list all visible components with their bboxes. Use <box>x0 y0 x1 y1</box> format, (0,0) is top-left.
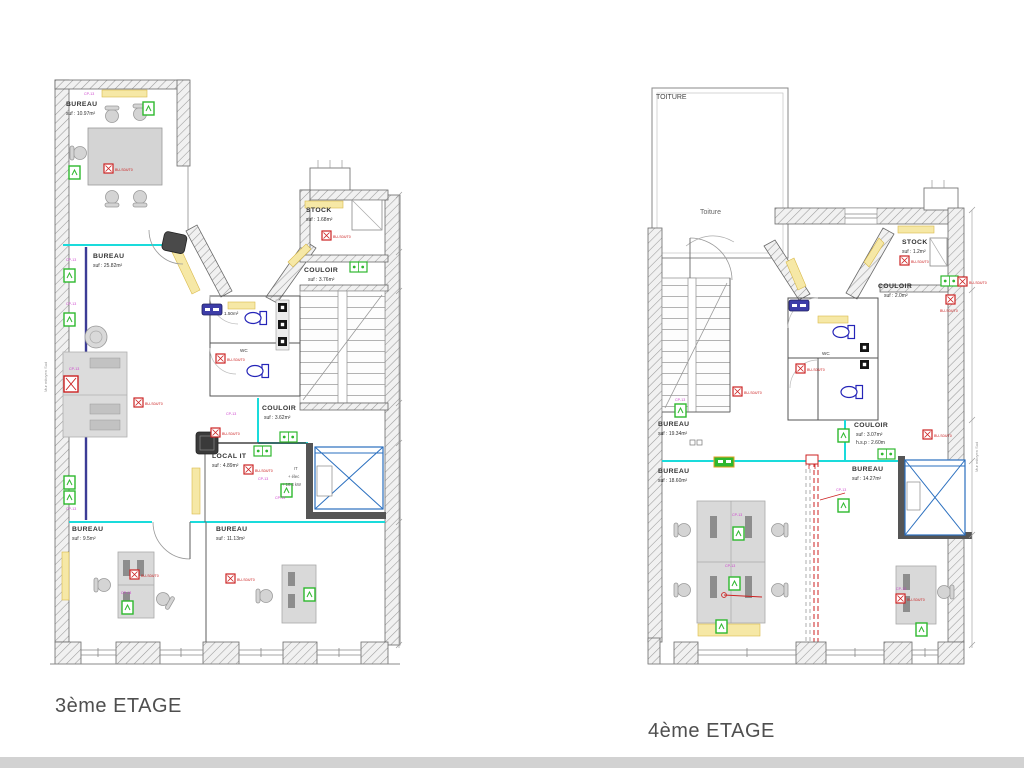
radiator <box>698 624 760 636</box>
room-area: suf : 11.13m² <box>216 536 245 542</box>
device-tag: BU-S04/T0 <box>940 295 958 313</box>
svg-text:BU-S04/T0: BU-S04/T0 <box>333 235 351 239</box>
radiator <box>102 90 147 97</box>
cabinet-shelf <box>90 358 120 368</box>
room-label: COULOIR <box>878 283 912 290</box>
monitor <box>288 572 295 586</box>
room-label: WC <box>240 348 248 353</box>
chair <box>105 191 119 208</box>
room-area: suf : 3.62m² <box>264 415 291 421</box>
party-wall-note: Mur mitoyen Sud <box>43 362 48 392</box>
svg-text:BU-S04/T0: BU-S04/T0 <box>969 281 987 285</box>
room-area: suf : 14.27m² <box>852 476 882 482</box>
pier <box>283 642 317 664</box>
wall-top <box>55 80 189 89</box>
duct-shaft <box>278 337 287 346</box>
pier <box>55 642 81 664</box>
room-label: BUREAU <box>658 421 689 428</box>
duct-shaft <box>278 320 287 329</box>
pier <box>884 642 912 664</box>
staircase <box>662 238 732 412</box>
circuit-tag: CP-13 <box>732 513 742 517</box>
duct-shaft <box>860 360 869 369</box>
svg-text:BU-S04/T0: BU-S04/T0 <box>222 432 240 436</box>
monitor <box>745 576 752 598</box>
pier <box>203 642 239 664</box>
safety-sign-tag-wide <box>254 446 271 456</box>
radiator <box>818 316 848 323</box>
monitor <box>123 560 130 576</box>
circuit-tag: CP-13 <box>675 398 685 402</box>
room-label: WC <box>822 351 830 356</box>
pier <box>674 642 698 664</box>
duct-shaft <box>278 303 287 312</box>
circuit-tag: CP-13 <box>725 564 735 568</box>
toilet <box>247 365 269 378</box>
floorplan-drawing: BU-S04/T0 BU-S04/T0 BU-S04/T0 BU-S04/T0 … <box>0 0 1024 768</box>
safety-sign-tag <box>64 491 75 504</box>
room-label: BUREAU <box>93 253 124 260</box>
safety-sign-tag <box>64 269 75 282</box>
device-tag: BU-S04/T0 <box>244 465 273 474</box>
safety-sign-tag <box>675 404 686 417</box>
it-note: + 10.3 kW <box>282 482 301 487</box>
counterweight <box>907 482 920 510</box>
radiator <box>228 302 255 309</box>
device-tag: BU-S04/T0 <box>216 354 245 363</box>
cabinet-shelf <box>90 404 120 414</box>
safety-sign-tag <box>143 102 154 115</box>
floor-box-symbol <box>690 440 702 445</box>
room-height: h.s.p : 2.60m <box>856 440 885 446</box>
toilet <box>833 326 855 339</box>
wall-right <box>385 195 400 645</box>
open-space-furniture <box>63 326 127 437</box>
safety-sign-tag <box>733 527 744 540</box>
chair <box>674 583 691 597</box>
chair <box>938 585 955 599</box>
exit-sign-highlight <box>714 457 734 467</box>
wc-block: WC <box>788 298 878 420</box>
device-tag: BU-S04/T0 <box>958 277 987 286</box>
facade-bottom <box>648 638 964 664</box>
pier <box>116 642 160 664</box>
monitor <box>710 576 717 598</box>
round-object <box>85 326 107 348</box>
armchair <box>161 231 187 254</box>
wall-couloir-stairs <box>300 285 388 291</box>
circuit-tag: CP-13 <box>275 496 285 500</box>
room-label: BUREAU <box>72 526 103 533</box>
safety-sign-tag <box>122 601 133 614</box>
radiator <box>62 552 69 600</box>
room-label: BUREAU <box>852 466 883 473</box>
monitor <box>710 516 717 538</box>
circuit-tag: CP-13 <box>836 488 846 492</box>
chair <box>105 106 119 123</box>
svg-text:BU-S04/T0: BU-S04/T0 <box>141 574 159 578</box>
wall-room1-right <box>177 80 190 166</box>
svg-text:BU-S04/T0: BU-S04/T0 <box>237 578 255 582</box>
door-arc <box>153 522 190 559</box>
room-area: suf : 9.5m² <box>72 536 96 542</box>
circuit-tag: CP-13 <box>66 507 76 511</box>
device-tag: BU-S04/T0 <box>796 364 825 373</box>
safety-sign-tag <box>838 429 849 442</box>
room-label: BUREAU <box>658 468 689 475</box>
safety-sign-tag <box>838 499 849 512</box>
room-label: LOCAL IT <box>212 453 247 460</box>
radiator <box>898 226 934 233</box>
monitor <box>745 516 752 538</box>
circuit-tag: CP-13 <box>121 591 131 595</box>
safety-sign-tag <box>716 620 727 633</box>
roof-label: TOITURE <box>656 94 687 101</box>
safety-sign-tag-wide <box>280 432 297 442</box>
room-label: STOCK <box>306 207 332 214</box>
wall-right <box>948 208 964 642</box>
it-note: + élec <box>288 474 299 479</box>
safety-sign-tag <box>64 476 75 489</box>
device-tag: BU-S04/T0 <box>900 256 929 265</box>
it-note: IT <box>294 466 298 471</box>
room-label: STOCK <box>902 239 928 246</box>
electrical-panel-tag <box>789 300 809 311</box>
circuit-tag: CP-13 <box>69 367 79 371</box>
elevator-shaft <box>306 443 386 519</box>
safety-sign-tag <box>729 577 740 590</box>
pier <box>938 642 964 664</box>
safety-sign-tag <box>64 313 75 326</box>
room-label: COULOIR <box>262 405 296 412</box>
svg-text:BU-S04/T0: BU-S04/T0 <box>227 358 245 362</box>
desk-cluster <box>674 501 788 636</box>
circuit-tag: CP-13 <box>896 587 906 591</box>
device-tag: BU-S04/T0 <box>134 398 163 407</box>
roof-outline <box>652 88 788 258</box>
wall-stock-top <box>300 190 388 200</box>
fire-device-symbol <box>806 455 818 469</box>
plan-title-4eme: 4ème ETAGE <box>648 720 775 742</box>
device-tag: BU-S04/T0 <box>923 430 952 439</box>
room-area: suf : 25.82m² <box>93 263 123 269</box>
footer-strip <box>0 757 1024 768</box>
staircase <box>300 291 388 410</box>
plan-4eme-etage: TOITURE Toiture <box>648 88 987 742</box>
circuit-tag: CP-13 <box>84 92 94 96</box>
svg-text:BU-S04/T0: BU-S04/T0 <box>255 469 273 473</box>
room-area: suf : 1.2m² <box>902 249 926 255</box>
chimney <box>310 168 350 192</box>
pier <box>648 638 660 664</box>
room-label: COULOIR <box>304 267 338 274</box>
safety-sign-tag-wide <box>941 276 958 286</box>
svg-text:BU-S04/T0: BU-S04/T0 <box>145 402 163 406</box>
chair <box>674 523 691 537</box>
circuit-tag: CP-13 <box>226 412 236 416</box>
dimension-line <box>969 207 975 648</box>
radiator <box>192 468 200 514</box>
chair <box>256 589 273 603</box>
circuit-tag: CP-13 <box>66 302 76 306</box>
room-area: 1.50m² <box>224 311 239 316</box>
wall-stock-couloir <box>300 255 388 262</box>
room-area: suf : 10.97m² <box>66 111 96 117</box>
svg-text:BU-S04/T0: BU-S04/T0 <box>940 309 958 313</box>
roof-center-label: Toiture <box>700 209 721 216</box>
room-area: suf : 19.34m² <box>658 431 688 437</box>
electrical-panel-tag <box>202 304 222 315</box>
room-area: suf : 3.07m² <box>856 432 883 438</box>
chimney <box>924 188 958 210</box>
svg-text:BU-S04/T0: BU-S04/T0 <box>744 391 762 395</box>
device-tag-large <box>64 376 78 392</box>
duct-shaft <box>860 343 869 352</box>
safety-sign-tag <box>304 588 315 601</box>
chair <box>94 578 111 592</box>
room-area: suf : 3.76m² <box>308 277 335 283</box>
chair <box>133 191 147 208</box>
circuit-tag: CP-13 <box>258 477 268 481</box>
chair <box>154 590 175 610</box>
svg-text:BU-S04/T0: BU-S04/T0 <box>807 368 825 372</box>
plan-3eme-etage: BU-S04/T0 BU-S04/T0 BU-S04/T0 BU-S04/T0 … <box>43 80 402 717</box>
room-label: BUREAU <box>216 526 247 533</box>
chair <box>70 146 87 160</box>
device-tag: BU-S04/T0 <box>733 387 762 396</box>
safety-sign-tag <box>916 623 927 636</box>
circuit-tag: CP-13 <box>66 258 76 262</box>
svg-text:BU-S04/T0: BU-S04/T0 <box>115 168 133 172</box>
elevator-shaft <box>898 456 972 539</box>
plan-title-3eme: 3ème ETAGE <box>55 695 182 717</box>
floorplan-sheet: BU-S04/T0 BU-S04/T0 BU-S04/T0 BU-S04/T0 … <box>0 0 1024 768</box>
radiator <box>172 247 200 294</box>
monitor <box>288 594 295 608</box>
shaft-wall <box>306 512 386 519</box>
device-tag: BU-S04/T0 <box>322 231 351 240</box>
room-area: suf : 4.89m² <box>212 463 239 469</box>
cabinet-shelf <box>90 420 120 430</box>
device-tag: BU-S04/T0 <box>226 574 255 583</box>
room-label: COULOIR <box>854 422 888 429</box>
room-area: suf : 2.0m² <box>884 293 908 299</box>
meeting-table <box>88 128 162 185</box>
facade-bottom <box>50 642 400 664</box>
bureau-bl-furniture <box>62 552 175 618</box>
safety-sign-tag-wide <box>878 449 895 459</box>
safety-sign-tag <box>69 166 80 179</box>
room-area: suf : 1.68m² <box>306 217 333 223</box>
svg-text:BU-S04/T0: BU-S04/T0 <box>934 434 952 438</box>
shaft-wall <box>306 443 313 519</box>
window <box>845 208 877 224</box>
chair <box>772 523 789 537</box>
svg-text:BU-S04/T0: BU-S04/T0 <box>907 598 925 602</box>
party-wall-note: Mur mitoyen Sud <box>974 442 979 472</box>
shaft-wall <box>898 456 905 538</box>
toilet <box>245 312 267 325</box>
chair <box>772 583 789 597</box>
toilet <box>841 386 863 399</box>
pier <box>361 642 388 664</box>
device-tag: BU-S04/T0 <box>211 428 240 437</box>
safety-sign-tag-wide <box>350 262 367 272</box>
counterweight <box>317 466 332 496</box>
svg-text:BU-S04/T0: BU-S04/T0 <box>911 260 929 264</box>
room-label: BUREAU <box>66 101 97 108</box>
room-area: suf : 18.60m² <box>658 478 688 484</box>
pier <box>796 642 826 664</box>
